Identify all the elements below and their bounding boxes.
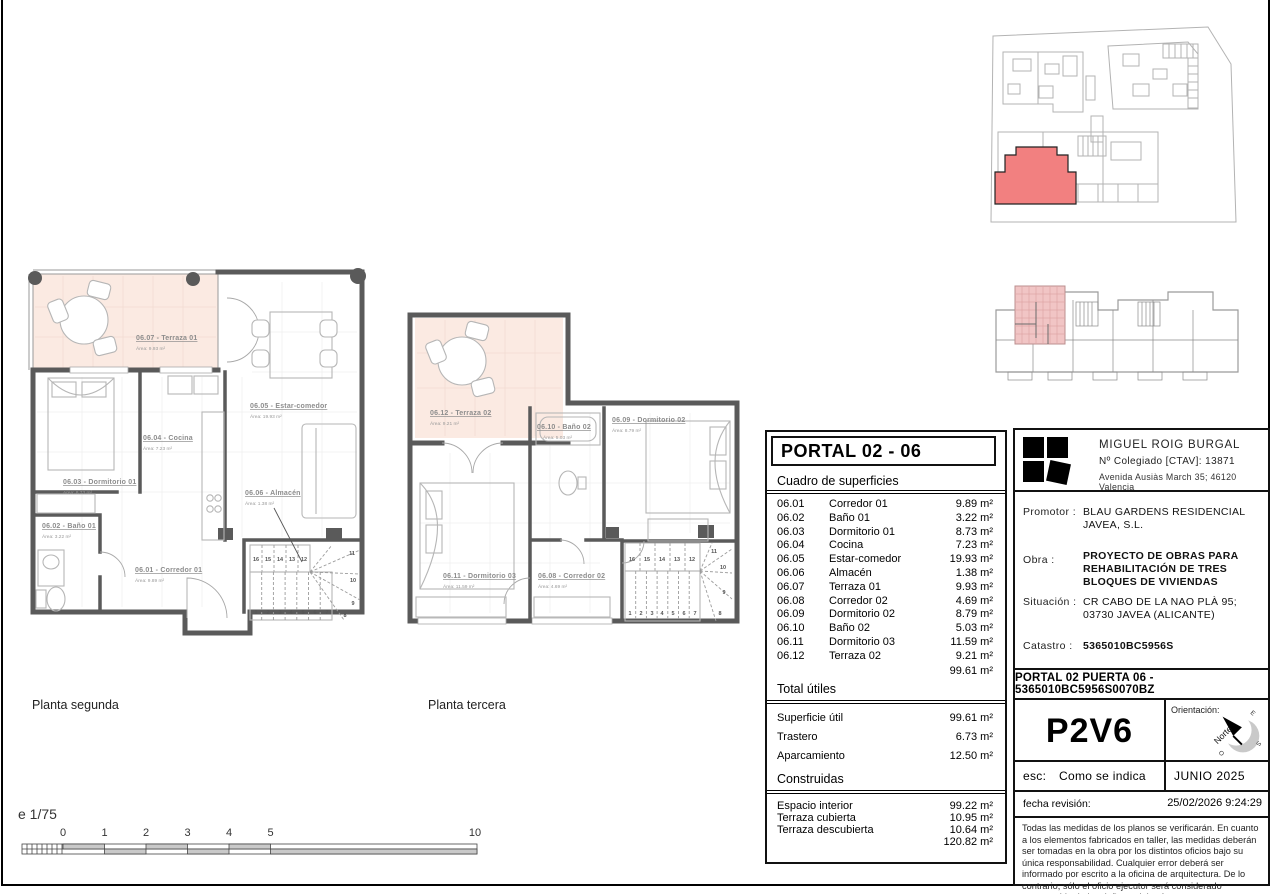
- room-name: Corredor 02: [829, 595, 956, 609]
- table-row: 06.11Dormitorio 0311.59 m²: [777, 636, 993, 650]
- utiles-name: Trastero: [777, 731, 818, 743]
- scale-label: e 1/75: [18, 806, 57, 822]
- room-code: 06.05: [777, 553, 829, 567]
- promotor-value: BLAU GARDENS RESIDENCIAL JAVEA, S.L.: [1083, 506, 1265, 532]
- surfaces-table: 06.01Corredor 019.89 m² 06.02Baño 013.22…: [777, 498, 993, 664]
- room-name: Terraza 01: [829, 581, 956, 595]
- architect-address: Avenida Ausiàs March 35; 46120 Valencia: [1099, 472, 1268, 492]
- room-name: Dormitorio 02: [829, 608, 956, 622]
- room-code: 06.06: [777, 567, 829, 581]
- stair-number: 3: [278, 610, 281, 616]
- window: [160, 367, 212, 373]
- room-area: 9.21 m²: [956, 650, 993, 664]
- table-row: 06.07Terraza 019.93 m²: [777, 581, 993, 595]
- room-label: 06.10 - Baño 02: [537, 424, 591, 431]
- room-area: 19.93 m²: [950, 553, 993, 567]
- construidas-area: 99.22 m²: [950, 800, 993, 812]
- utiles-title: Total útiles: [777, 682, 836, 696]
- room-area-label: Área: 11.59 m²: [443, 583, 475, 590]
- scale-tick: 10: [469, 827, 481, 839]
- room-area-label: Área: 8.73 m²: [63, 489, 92, 496]
- shaft: [326, 528, 342, 540]
- catastro-value: 5365010BC5956S: [1083, 640, 1265, 653]
- stair-number: 7: [325, 610, 328, 616]
- shaft: [218, 528, 233, 540]
- table-row: 06.05Estar-comedor19.93 m²: [777, 553, 993, 567]
- site-plan: [983, 24, 1255, 229]
- room-label: 06.01 - Corredor 01: [135, 567, 202, 574]
- room-code: 06.03: [777, 526, 829, 540]
- room-code: 06.09: [777, 608, 829, 622]
- room-area-label: Área: 3.22 m²: [42, 533, 71, 540]
- utiles-name: Superficie útil: [777, 712, 843, 724]
- stair-number: 1: [628, 611, 631, 617]
- table-row: 06.02Baño 013.22 m²: [777, 512, 993, 526]
- floorplan-planta-tercera: 16 15 14 13 12 11 10 9 8 1 2 3 4 5 6 7 0…: [400, 303, 745, 643]
- table-row: 06.12Terraza 029.21 m²: [777, 650, 993, 664]
- room-area-label: Área: 8.79 m²: [612, 427, 641, 434]
- building-upper-left: [1003, 52, 1083, 112]
- stair-number: 16: [253, 557, 259, 563]
- stair-number: 9: [722, 590, 725, 596]
- room-name: Baño 01: [829, 512, 956, 526]
- utiles-name: Aparcamiento: [777, 750, 845, 762]
- closet: [37, 494, 95, 513]
- stair-number: 5: [671, 611, 674, 617]
- room-name: Cocina: [829, 539, 956, 553]
- sofa: [302, 424, 356, 518]
- table-row: 06.08Corredor 024.69 m²: [777, 595, 993, 609]
- scale-tick: 0: [60, 827, 66, 839]
- utiles-row: Aparcamiento12.50 m²: [777, 750, 993, 762]
- stair-number: 15: [644, 557, 650, 563]
- stair-number: 5: [301, 610, 304, 616]
- construidas-total-row: 120.82 m²: [777, 836, 993, 848]
- situacion-value: CR CABO DE LA NAO PLÀ 95; 03730 JAVEA (A…: [1083, 596, 1265, 622]
- closet: [534, 597, 610, 617]
- stair-number: 16: [629, 557, 635, 563]
- floorplan-planta-segunda: 16 15 14 13 12 11 10 9 8 1 2 3 4 5 6 7 0…: [22, 262, 372, 642]
- compass-icon: Norte E S O: [1210, 704, 1268, 762]
- column: [28, 271, 42, 285]
- architect-name: MIGUEL ROIG BURGAL: [1099, 439, 1240, 451]
- room-name: Estar-comedor: [829, 553, 950, 567]
- stair-number: 10: [350, 578, 356, 584]
- room-code: 06.01: [777, 498, 829, 512]
- highlighted-unit: [1015, 286, 1065, 344]
- room-name: Terraza 02: [829, 650, 956, 664]
- stair-number: 2: [266, 610, 269, 616]
- stair-number: 6: [682, 611, 685, 617]
- closet: [416, 597, 506, 617]
- scale-tick: 2: [143, 827, 149, 839]
- stair-number: 12: [301, 557, 307, 563]
- room-label: 06.07 - Terraza 01: [136, 335, 197, 342]
- stair-number: 4: [660, 611, 664, 617]
- room-label: 06.06 - Almacén: [245, 490, 301, 497]
- sheet-border-left: [1, 0, 3, 886]
- room-area: 11.59 m²: [950, 636, 993, 650]
- utiles-row: Superficie útil99.61 m²: [777, 712, 993, 724]
- plan-caption-tercera: Planta tercera: [428, 698, 506, 712]
- stair-number: 2: [639, 611, 642, 617]
- obra-value: PROYECTO DE OBRAS PARA REHABILITACIÓN DE…: [1083, 550, 1265, 589]
- compass-east-label: E: [1249, 709, 1257, 717]
- table-row: 06.04Cocina7.23 m²: [777, 539, 993, 553]
- revision-value: 25/02/2026 9:24:29: [1167, 797, 1262, 809]
- situacion-label: Situación :: [1023, 596, 1076, 608]
- stair-number: 13: [289, 557, 295, 563]
- room-area: 4.69 m²: [956, 595, 993, 609]
- room-area: 9.89 m²: [956, 498, 993, 512]
- divider: [767, 700, 1005, 704]
- table-row: 06.03Dormitorio 018.73 m²: [777, 526, 993, 540]
- title-block: MIGUEL ROIG BURGAL Nº Colegiado [CTAV]: …: [1013, 428, 1270, 886]
- construidas-area: 10.64 m²: [950, 824, 993, 836]
- room-code: 06.07: [777, 581, 829, 595]
- orientation-cell: Orientación: Norte E S O: [1164, 700, 1268, 762]
- room-area: 7.23 m²: [956, 539, 993, 553]
- stair-number: 8: [343, 613, 346, 619]
- plan-caption-segunda: Planta segunda: [32, 698, 119, 712]
- stair-number: 14: [659, 557, 666, 563]
- compass-west-label: O: [1218, 748, 1226, 756]
- utiles-area: 99.61 m²: [950, 712, 993, 724]
- unit-reference: PORTAL 02 PUERTA 06 - 5365010BC5956S0070…: [1015, 670, 1268, 700]
- leader-line: [274, 508, 302, 562]
- revision-label: fecha revisión:: [1023, 798, 1091, 810]
- room-area: 3.22 m²: [956, 512, 993, 526]
- construidas-row: Terraza cubierta10.95 m²: [777, 812, 993, 824]
- room-area: 8.73 m²: [956, 526, 993, 540]
- room-area: 1.38 m²: [956, 567, 993, 581]
- obra-label: Obra :: [1023, 554, 1055, 566]
- project-fields: Promotor : BLAU GARDENS RESIDENCIAL JAVE…: [1015, 492, 1268, 670]
- construidas-name: Terraza descubierta: [777, 824, 874, 836]
- utiles-area: 12.50 m²: [950, 750, 993, 762]
- divider: [767, 790, 1005, 794]
- room-area-label: Área: 9.21 m²: [430, 420, 459, 427]
- surfaces-subtitle: Cuadro de superficies: [777, 474, 899, 488]
- stair-number: 9: [351, 601, 354, 607]
- utiles-row: Trastero6.73 m²: [777, 731, 993, 743]
- room-name: Dormitorio 01: [829, 526, 956, 540]
- room-code: 06.11: [777, 636, 829, 650]
- room-area: 5.03 m²: [956, 622, 993, 636]
- room-area-label: Área: 9.89 m²: [135, 577, 164, 584]
- esc-value: Como se indica: [1059, 769, 1146, 783]
- bathroom-fixtures: [36, 550, 65, 611]
- stair-number: 10: [720, 565, 726, 571]
- room-label: 06.05 - Estar-comedor: [250, 403, 327, 410]
- room-area: 9.93 m²: [956, 581, 993, 595]
- stair-number: 6: [313, 610, 316, 616]
- rooms-total: 99.61 m²: [950, 665, 993, 677]
- room-code: 06.12: [777, 650, 829, 664]
- room-label: 06.04 - Cocina: [143, 435, 193, 442]
- room-name: Corredor 01: [829, 498, 956, 512]
- room-label: 06.12 - Terraza 02: [430, 410, 491, 417]
- room-area-label: Área: 9.93 m²: [136, 345, 165, 352]
- construidas-total: 120.82 m²: [943, 836, 993, 848]
- construidas-name: Espacio interior: [777, 800, 853, 812]
- window: [70, 367, 128, 373]
- plan-sheet: { "sheet": { "scale": {"label": "e 1/75"…: [0, 0, 1279, 894]
- dining-table: [252, 312, 337, 378]
- bed-dormitorio01: [48, 378, 114, 470]
- esc-label: esc:: [1023, 769, 1046, 783]
- building-upper-right: [1108, 42, 1198, 109]
- column: [186, 272, 200, 286]
- unit-row: P2V6 Orientación: Norte E S O: [1015, 700, 1268, 762]
- room-label: 06.11 - Dormitorio 03: [443, 573, 516, 580]
- shaft: [606, 527, 619, 538]
- construidas-title: Construidas: [777, 772, 844, 786]
- date-value: JUNIO 2025: [1174, 769, 1245, 783]
- stair-number: 13: [674, 557, 680, 563]
- architect-logo-icon: [1023, 437, 1071, 485]
- room-name: Dormitorio 03: [829, 636, 950, 650]
- room-label: 06.09 - Dormitorio 02: [612, 417, 685, 424]
- divider: [767, 490, 1005, 494]
- promotor-label: Promotor :: [1023, 506, 1076, 518]
- scale-tick: 1: [101, 827, 107, 839]
- stair-number: 7: [693, 611, 696, 617]
- utiles-area: 6.73 m²: [956, 731, 993, 743]
- room-area-label: Área: 7.23 m²: [143, 445, 172, 452]
- stair-number: 8: [718, 611, 721, 617]
- room-code: 06.02: [777, 512, 829, 526]
- room-code: 06.08: [777, 595, 829, 609]
- terraza-02: [415, 318, 563, 438]
- window: [532, 618, 612, 624]
- room-code: 06.04: [777, 539, 829, 553]
- stair-number: 12: [689, 557, 695, 563]
- catastro-label: Catastro :: [1023, 640, 1073, 652]
- room-label: 06.02 - Baño 01: [42, 523, 96, 530]
- stair-number: 14: [277, 557, 284, 563]
- room-area: 8.79 m²: [956, 608, 993, 622]
- architect-college: Nº Colegiado [CTAV]: 13871: [1099, 456, 1235, 467]
- room-label: 06.03 - Dormitorio 01: [63, 479, 136, 486]
- table-row: 06.01Corredor 019.89 m²: [777, 498, 993, 512]
- window: [418, 618, 506, 624]
- site-detail: [1086, 76, 1095, 100]
- scale-row: esc: Como se indica JUNIO 2025: [1015, 762, 1268, 792]
- scale-tick: 3: [184, 827, 190, 839]
- room-name: Almacén: [829, 567, 956, 581]
- stairs: 16 15 14 13 12 11 10 9 8 1 2 3 4 5 6 7: [250, 545, 360, 620]
- unit-code: P2V6: [1015, 700, 1164, 762]
- architect-section: MIGUEL ROIG BURGAL Nº Colegiado [CTAV]: …: [1015, 430, 1268, 492]
- table-row: 06.06Almacén1.38 m²: [777, 567, 993, 581]
- shaft: [698, 525, 714, 538]
- table-row: 06.10Baño 025.03 m²: [777, 622, 993, 636]
- scale-bar: 0 1 2 3 4 5 10: [20, 824, 490, 870]
- key-plan: [988, 272, 1246, 384]
- room-area-label: Área: 4.69 m²: [538, 583, 567, 590]
- scale-tick: 5: [267, 827, 273, 839]
- stair-number: 3: [650, 611, 653, 617]
- stairs: 16 15 14 13 12 11 10 9 8 1 2 3 4 5 6 7: [625, 543, 732, 621]
- construidas-area: 10.95 m²: [950, 812, 993, 824]
- room-area-label: Área: 19.93 m²: [250, 413, 282, 420]
- construidas-name: Terraza cubierta: [777, 812, 856, 824]
- highlighted-unit: [995, 147, 1076, 204]
- surfaces-panel: PORTAL 02 - 06 Cuadro de superficies 06.…: [765, 430, 1007, 864]
- stair-number: 11: [711, 549, 717, 555]
- kitchen-counter: [168, 376, 224, 540]
- stair-number: 11: [349, 551, 355, 557]
- bed-dormitorio02: [646, 421, 730, 513]
- room-code: 06.10: [777, 622, 829, 636]
- room-name: Baño 02: [829, 622, 956, 636]
- stair-number: 1: [254, 610, 257, 616]
- table-row: 06.09Dormitorio 028.79 m²: [777, 608, 993, 622]
- construidas-row: Terraza descubierta10.64 m²: [777, 824, 993, 836]
- date-cell: JUNIO 2025: [1164, 762, 1268, 792]
- disclaimer-text: Todas las medidas de los planos se verif…: [1015, 818, 1268, 884]
- revision-row: fecha revisión: 25/02/2026 9:24:29: [1015, 792, 1268, 818]
- room-area-label: Área: 5.03 m²: [543, 434, 572, 441]
- room-label: 06.08 - Corredor 02: [538, 573, 605, 580]
- scale-tick: 4: [226, 827, 232, 839]
- construidas-row: Espacio interior99.22 m²: [777, 800, 993, 812]
- portal-title: PORTAL 02 - 06: [771, 436, 996, 466]
- room-area-label: Área: 1.38 m²: [245, 500, 274, 507]
- stair-number: 15: [265, 557, 271, 563]
